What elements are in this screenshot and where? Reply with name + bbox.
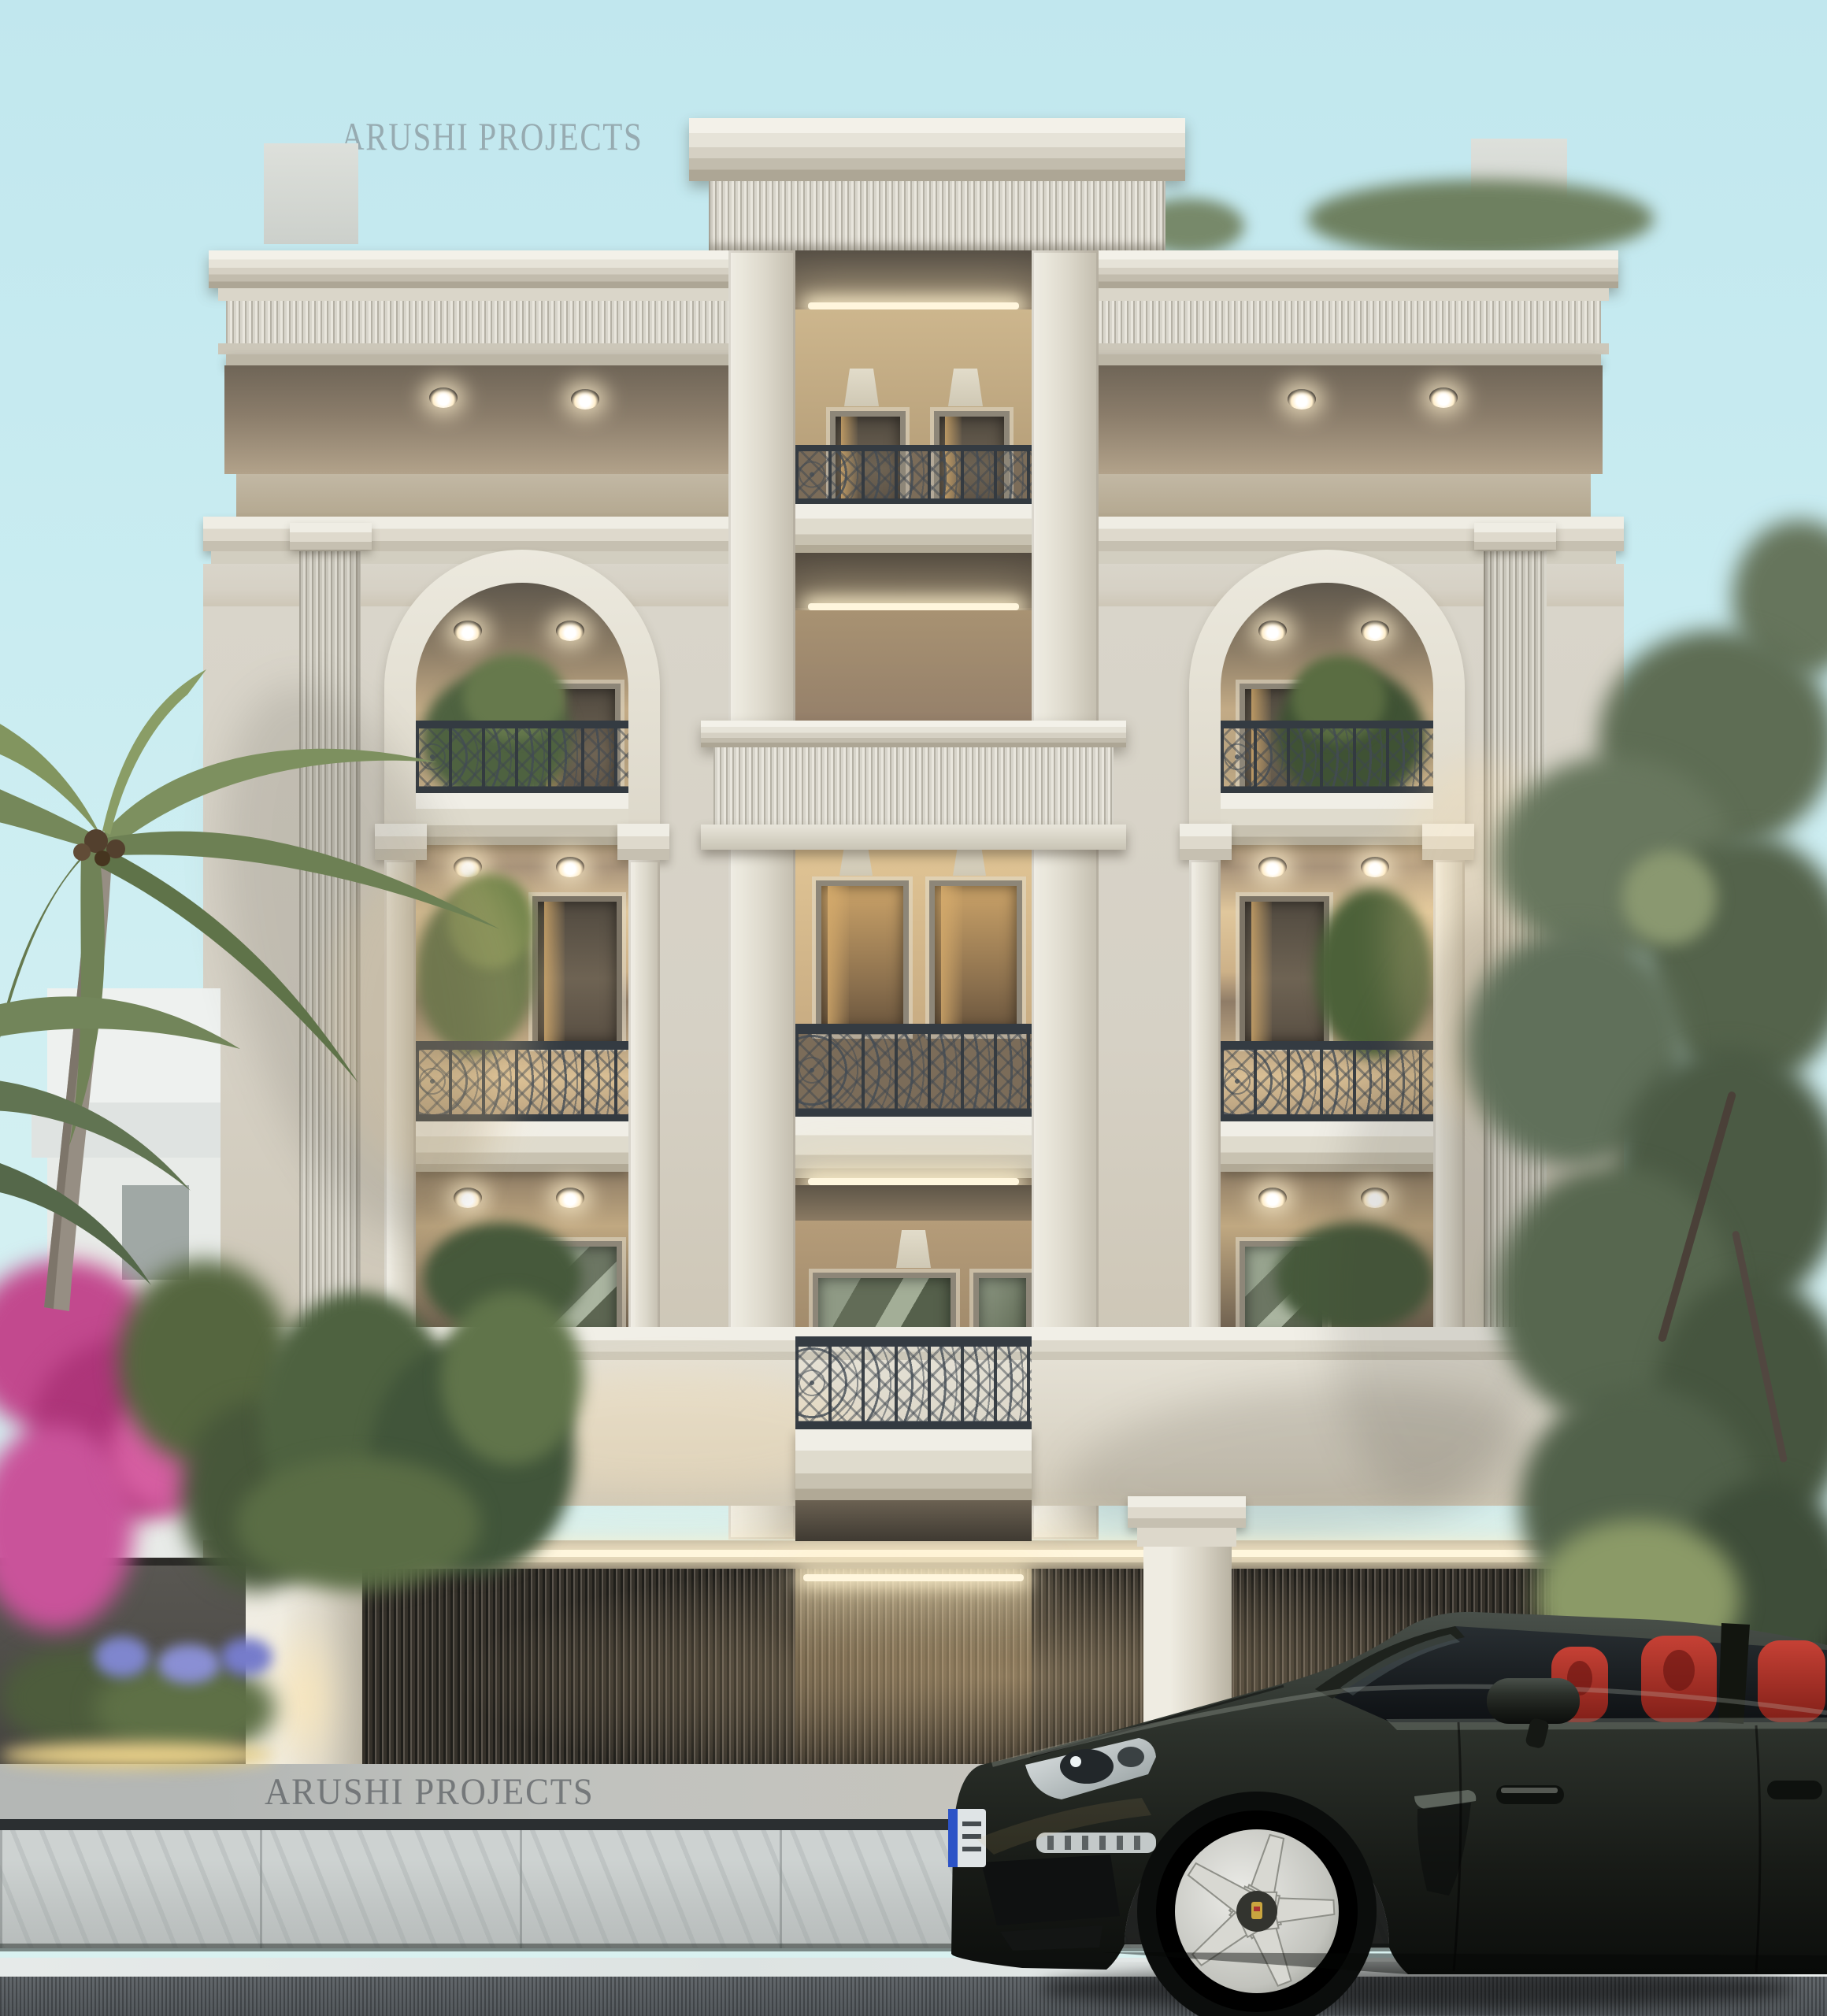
watermark-bottom: ARUSHI PROJECTS xyxy=(265,1770,595,1814)
balcony-window xyxy=(532,896,622,1047)
corner-pilaster-capital-left xyxy=(290,523,372,550)
attic-fluted-frieze xyxy=(709,181,1165,250)
tower-ceiling xyxy=(795,553,1032,608)
tower-ceiling xyxy=(795,1185,1032,1221)
tower-slab xyxy=(795,504,1032,553)
agapanthus-flowers xyxy=(220,1638,272,1676)
corner-pilaster-capital-right xyxy=(1474,523,1556,550)
car-beltline xyxy=(1386,1718,1827,1730)
tower-railing-terrace xyxy=(795,445,1032,504)
attic-cap-cornice xyxy=(689,118,1185,181)
tower-led-strip xyxy=(808,302,1019,309)
tree-lit-foliage xyxy=(1622,850,1717,945)
niche-downlight xyxy=(1258,621,1287,641)
tower-slab xyxy=(795,1117,1032,1178)
niche-downlight xyxy=(1361,621,1389,641)
niche-downlight xyxy=(1361,857,1389,877)
soffit-downlight xyxy=(429,387,458,408)
agapanthus-flowers xyxy=(94,1636,150,1677)
car-drl-strip xyxy=(1036,1833,1156,1853)
niche-downlight xyxy=(1258,1188,1287,1208)
arch-jamb xyxy=(628,860,660,1331)
stilt-cove-light xyxy=(378,1550,1614,1557)
niche-downlight xyxy=(556,857,584,877)
niche-downlight xyxy=(556,1188,584,1208)
tower-gate-header-shadow xyxy=(795,1500,1032,1541)
tower-mid-cornice xyxy=(701,721,1126,747)
balcony-railing-upper xyxy=(1221,721,1433,793)
soffit-downlight xyxy=(1429,387,1458,408)
tower-mid-frieze xyxy=(713,747,1114,825)
window-keystone xyxy=(844,369,879,406)
lit-window xyxy=(816,880,909,1035)
agapanthus-flowers xyxy=(157,1644,220,1684)
exterior-render-scene: ARUSHI PROJECTS xyxy=(0,0,1827,2016)
gate-cove-light xyxy=(803,1574,1024,1581)
arch-jamb xyxy=(1189,860,1221,1331)
tower-led-strip xyxy=(808,603,1019,610)
soffit-downlight xyxy=(1288,389,1316,409)
niche-downlight xyxy=(556,621,584,641)
window-keystone xyxy=(948,369,983,406)
luxury-sedan-car xyxy=(945,1603,1827,2016)
tower-railing-f1 xyxy=(795,1336,1032,1429)
garden-uplight xyxy=(0,1742,276,1769)
lit-window xyxy=(929,880,1022,1035)
soffit-downlight xyxy=(571,389,599,409)
coconut-palm-tree xyxy=(0,669,520,1441)
tower-mid-cap xyxy=(701,825,1126,850)
niche-downlight xyxy=(454,621,482,641)
arch-impost xyxy=(1180,824,1232,860)
tower-ceiling xyxy=(795,250,1032,307)
arch-impost xyxy=(617,824,669,860)
tower-led-strip xyxy=(808,1178,1019,1185)
tower-wall xyxy=(795,610,1032,723)
car-bumper-intake xyxy=(981,1855,1120,1925)
window-keystone xyxy=(896,1230,931,1268)
niche-downlight xyxy=(1258,857,1287,877)
tower-slab-f1 xyxy=(795,1429,1032,1500)
tower-railing-f2 xyxy=(795,1024,1032,1117)
